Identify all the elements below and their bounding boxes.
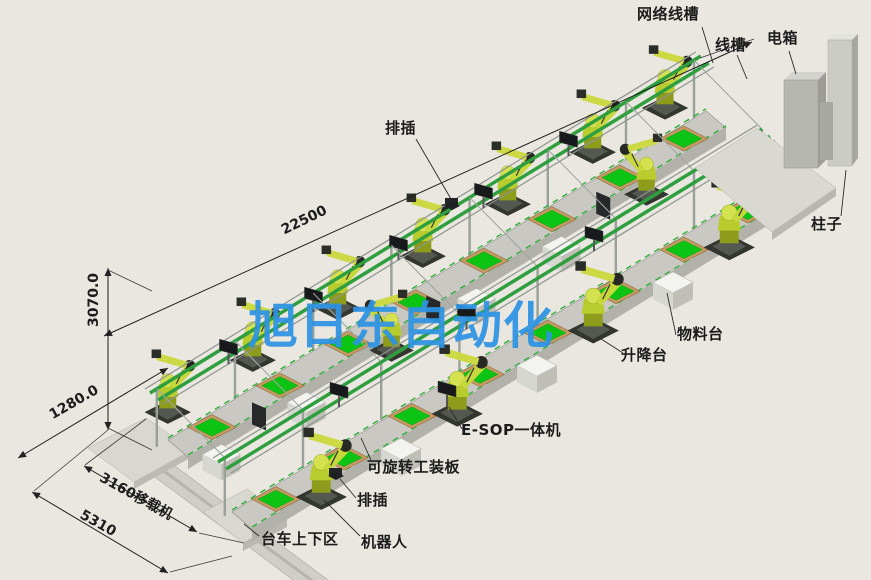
label-robot: 机器人: [361, 534, 408, 551]
robot-icon: [485, 142, 535, 216]
robot-icon: [570, 89, 620, 163]
label-trunking: 线槽: [715, 37, 746, 54]
robot-icon: [145, 350, 195, 424]
layout-drawing: 22500 3070.0 1280.0 3160移载机 5310 旭日东自动化 …: [0, 0, 871, 580]
watermark: 旭日东自动化: [248, 286, 554, 358]
label-material-table: 物料台: [677, 326, 724, 343]
dim-3070: 3070.0: [86, 273, 102, 327]
dim-22500: 22500: [279, 202, 330, 238]
label-power-strip-bottom: 排插: [357, 492, 388, 509]
dim-1280: 1280.0: [47, 382, 102, 423]
label-pillar: 柱子: [811, 216, 842, 233]
robot-icon: [642, 45, 692, 119]
label-network-trunking: 网络线槽: [637, 6, 699, 23]
label-trolley-load-area: 台车上下区: [261, 531, 339, 548]
label-power-strip-top: 排插: [385, 120, 416, 137]
label-rotatable-fixture-plate: 可旋转工装板: [367, 459, 460, 476]
label-esop-terminal: E-SOP一体机: [461, 422, 561, 439]
label-electric-box: 电箱: [767, 30, 798, 47]
label-lift-table: 升降台: [621, 347, 668, 364]
dim-5310: 5310: [77, 507, 119, 540]
robot-icon: [400, 194, 450, 268]
electric-cabinet: [784, 72, 833, 168]
